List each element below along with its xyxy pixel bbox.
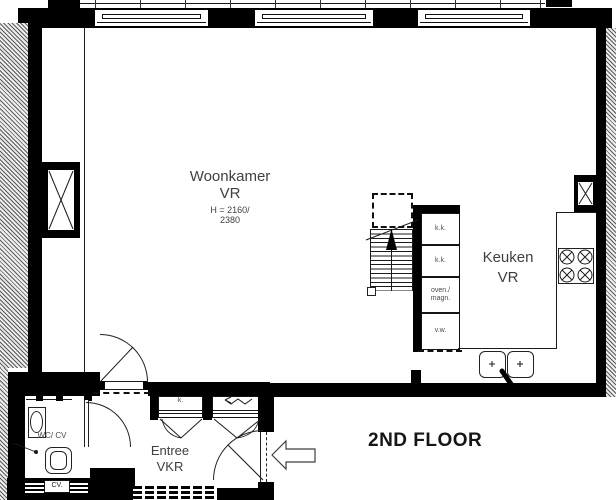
wall-entry-east — [258, 396, 274, 432]
entry-room-name: Entree — [128, 443, 212, 459]
counter-edge — [556, 212, 557, 349]
closet-wardrobe — [212, 396, 263, 418]
counter-edge — [557, 212, 596, 213]
fridge-cabinet-top: k.k. — [421, 213, 460, 245]
living-room-code: VR — [155, 185, 305, 202]
door-jamb — [100, 381, 105, 390]
fridge-label: k.k. — [435, 257, 446, 265]
facade-tick — [230, 0, 231, 8]
window — [95, 8, 208, 28]
kitchen-wall-top — [413, 205, 460, 213]
counter-edge — [458, 348, 557, 349]
floor-plan: k. Entree VKR WC/ CV CV. 32-2A Woonkamer… — [0, 0, 616, 500]
facade-tick — [365, 0, 366, 8]
wall-pier — [373, 8, 418, 28]
stairs-newel — [367, 287, 376, 296]
closet-wall — [150, 388, 158, 420]
party-wall-hatch — [606, 28, 616, 397]
facade-tick — [500, 0, 501, 8]
window-glazing — [425, 14, 523, 19]
wall-south-east — [270, 383, 605, 397]
toilet-bowl — [50, 451, 67, 470]
living-room-label: Woonkamer VR H = 2160/ 2380 — [155, 168, 305, 225]
facade-tick — [320, 0, 321, 8]
closet-label: k. — [178, 397, 183, 405]
wall-stair-kitchen — [413, 205, 421, 352]
wall-pier — [411, 370, 421, 385]
facade-tick — [540, 0, 541, 8]
floor-title: 2ND FLOOR — [368, 430, 528, 452]
facade-tick — [140, 0, 141, 8]
door-frame — [100, 389, 148, 390]
wc-room-label: WC/ CV — [24, 431, 80, 440]
wc-shelf-tab — [36, 396, 43, 401]
sink-right — [507, 351, 534, 378]
stair-void-dashed — [372, 193, 413, 228]
window-sill — [257, 22, 371, 23]
ceiling-height-line1: H = 2160/ — [155, 205, 305, 215]
entrance-tag-label: 32-2A — [285, 450, 313, 459]
closet-shelf — [213, 410, 262, 414]
vent-grille — [133, 486, 217, 500]
shaft-west-inner — [48, 170, 74, 230]
wc-shelf-line — [26, 399, 72, 400]
cv-cabinet: CV. — [44, 480, 70, 493]
entry-room-label: Entree VKR — [128, 443, 212, 474]
dishwasher-cabinet: v.w. — [421, 313, 460, 350]
ceiling-height-line2: 2380 — [155, 215, 305, 225]
cooktop — [558, 248, 594, 284]
closet-shelf — [159, 410, 202, 414]
wall-west — [28, 23, 42, 372]
facade-tick — [185, 0, 186, 8]
window — [418, 8, 530, 28]
wc-leader-dot — [34, 450, 38, 454]
facade-tick — [95, 0, 96, 8]
facade-line — [48, 3, 545, 4]
facade-tick — [275, 0, 276, 8]
dishwasher-label: v.w. — [435, 327, 447, 335]
sink-left — [479, 351, 506, 378]
wall-segment — [90, 468, 135, 490]
wall-corner — [530, 8, 612, 28]
stairs-walkline — [391, 229, 392, 291]
kitchen-room-code: VR — [462, 268, 554, 288]
wall-east — [596, 28, 606, 397]
facade-tick — [455, 0, 456, 8]
closet-k: k. — [158, 396, 203, 418]
window — [255, 8, 373, 28]
cv-louver — [25, 481, 44, 493]
counter-dash — [418, 350, 462, 352]
wall-segment — [546, 0, 572, 7]
interior-wall-line — [84, 28, 85, 372]
window-glazing — [102, 14, 201, 19]
kitchen-room-label: Keuken VR — [462, 248, 554, 287]
oven-microwave-cabinet: oven./ magn. — [421, 277, 460, 313]
cv-louver — [70, 481, 88, 493]
oven-label: oven./ — [431, 287, 450, 295]
washbasin-bowl — [30, 411, 43, 433]
wall-wc-west — [8, 396, 25, 480]
fridge-cabinet-bottom: k.k. — [421, 245, 460, 277]
wall-south-west — [3, 372, 100, 396]
living-room-name: Woonkamer — [155, 168, 305, 185]
party-wall-hatch — [0, 23, 28, 368]
door-swing-wc — [86, 402, 131, 447]
door-jamb — [143, 381, 148, 390]
door-opening-dash — [93, 392, 150, 394]
wall-entry-east — [258, 482, 274, 500]
facade-tick — [410, 0, 411, 8]
cv-label: CV. — [51, 482, 62, 490]
window-sill — [420, 22, 528, 23]
closet-door-lines — [160, 419, 202, 438]
kitchen-room-name: Keuken — [462, 248, 554, 268]
door-swing-living — [100, 334, 148, 382]
fridge-label: k.k. — [435, 225, 446, 233]
door-swing-front — [213, 430, 263, 480]
closet-wall — [203, 392, 212, 420]
shaft-east-inner — [578, 182, 593, 205]
wall-pier — [208, 8, 255, 28]
window-sill — [97, 22, 206, 23]
entry-room-code: VKR — [128, 459, 212, 475]
wc-shelf-tab — [56, 396, 63, 401]
wall-segment — [48, 0, 80, 8]
oven-label: magn. — [431, 295, 450, 303]
window-glazing — [262, 14, 366, 19]
